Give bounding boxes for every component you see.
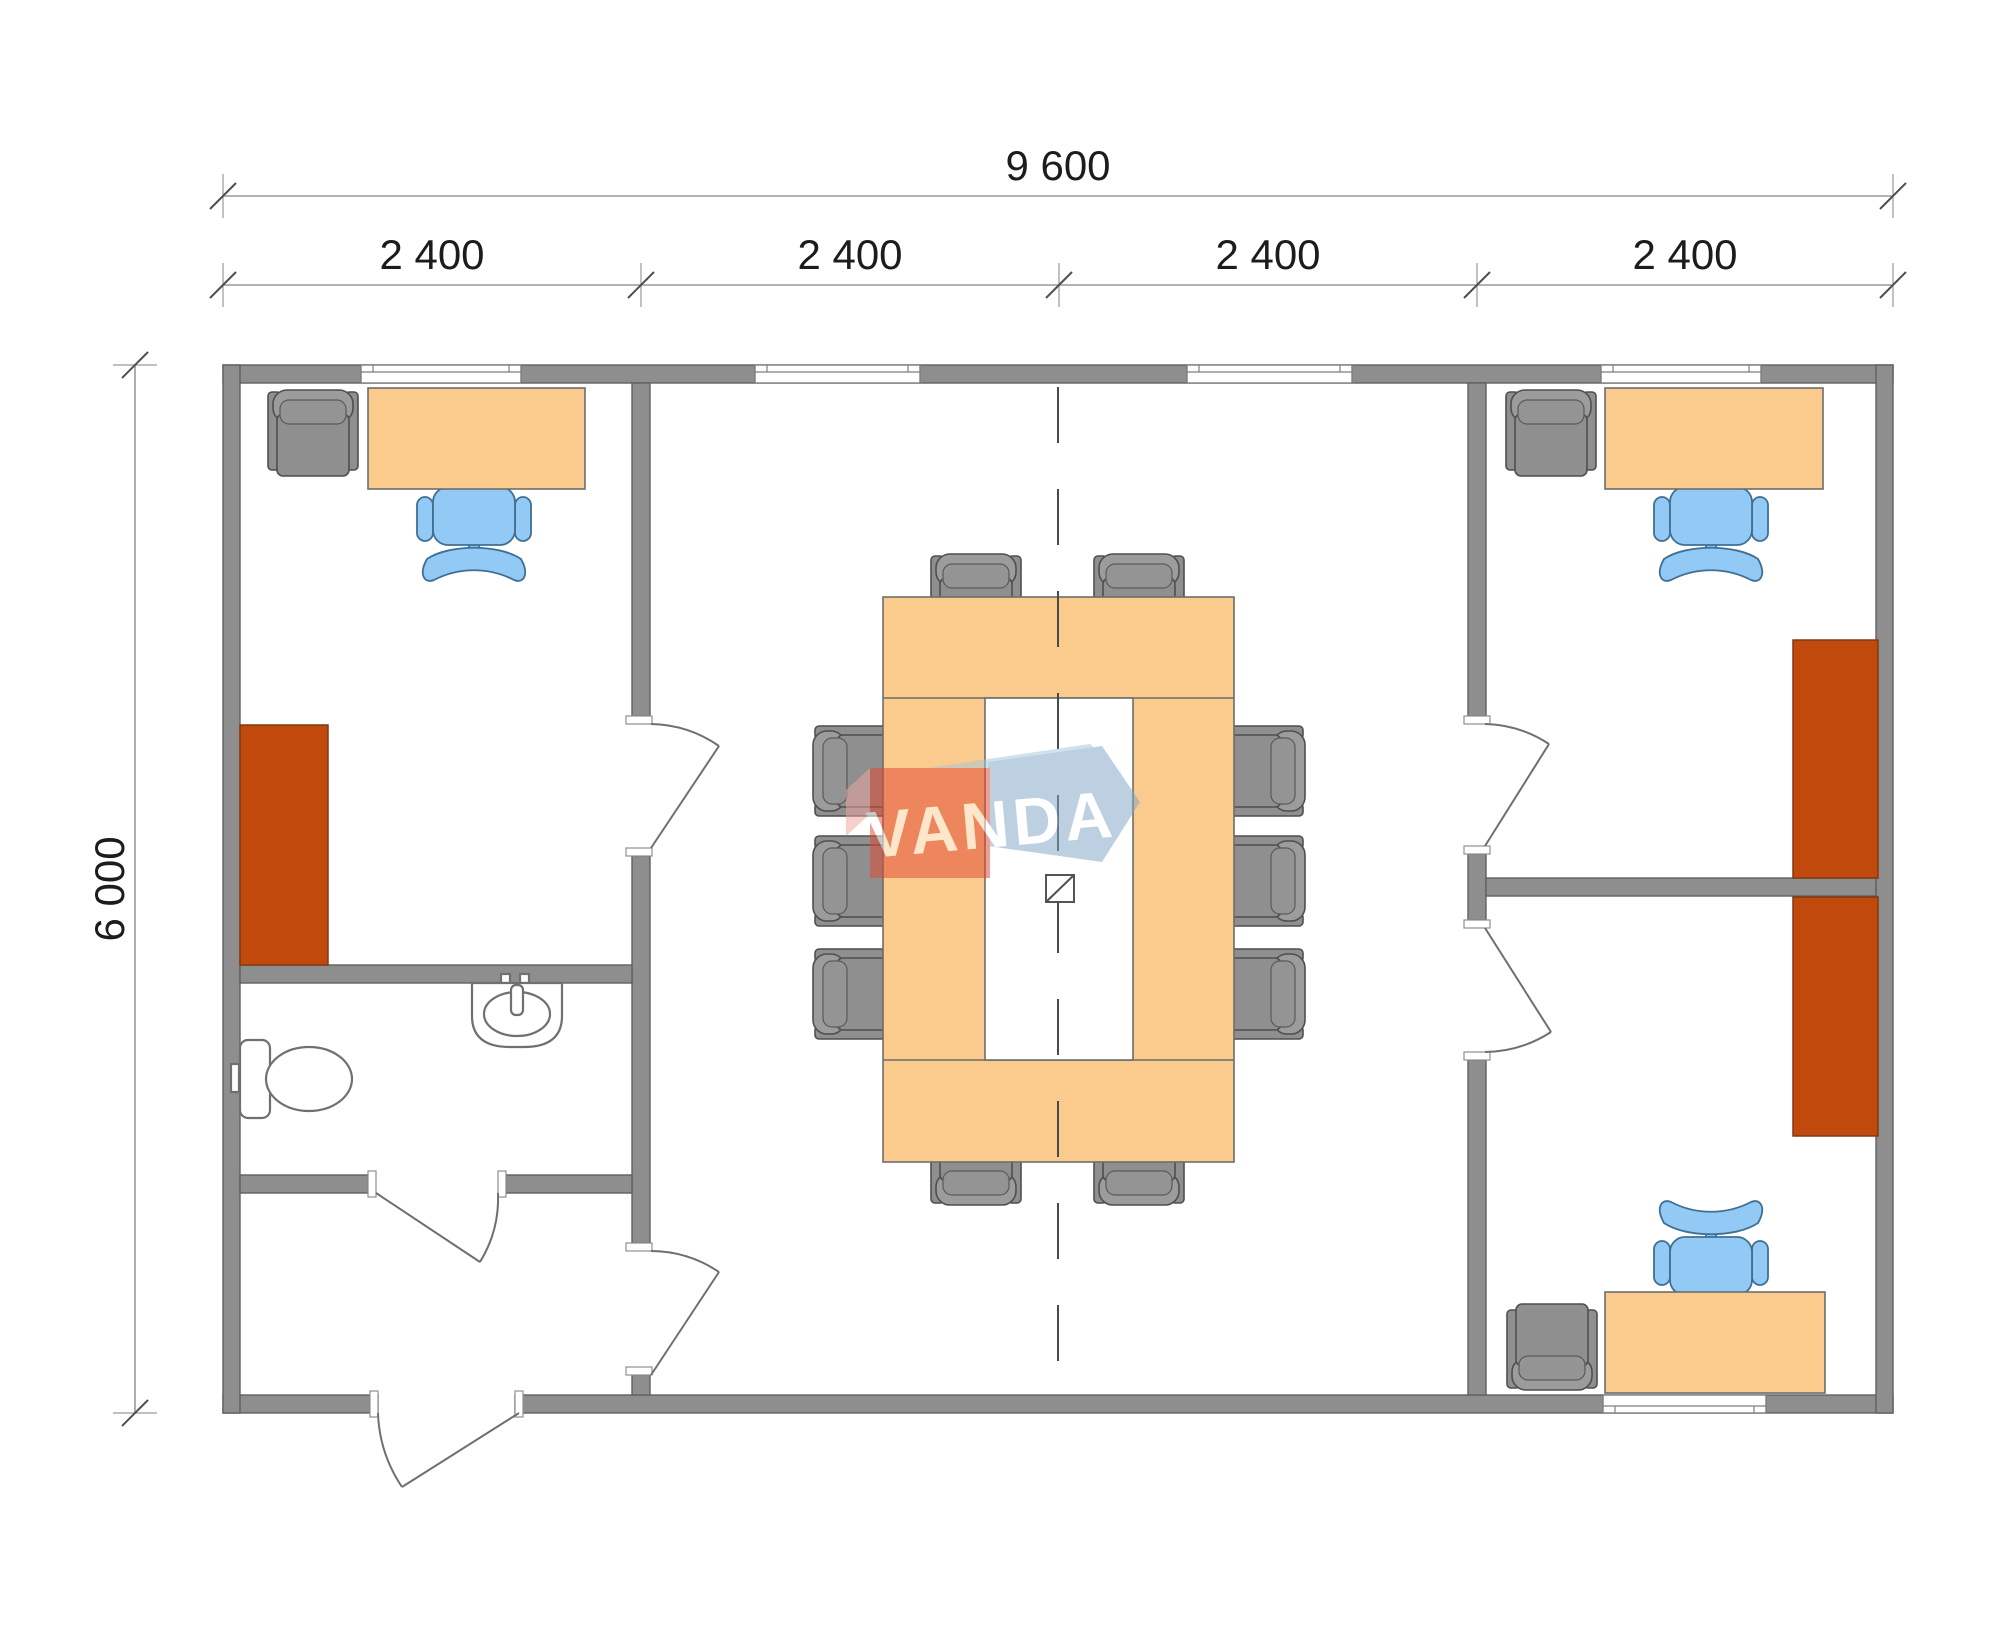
- dimension-label-overall-width: 9 600: [1005, 142, 1110, 189]
- visitor-chair: [268, 390, 358, 476]
- wall-right-rooms-divider: [1486, 878, 1876, 896]
- wall-left-module-middle: [632, 856, 650, 1243]
- dimension-label-module-2: 2 400: [797, 231, 902, 278]
- dimension-label-overall-height: 6 000: [86, 836, 133, 941]
- floor-plan-canvas: VANDA 9 600 2 400 2 400 2 400 2 400 6 00…: [0, 0, 2000, 1630]
- dimension-overall-width: 9 600: [210, 142, 1906, 218]
- wall-toilet-bottom-right: [506, 1175, 632, 1193]
- sink: [472, 974, 562, 1047]
- door-entrance: [378, 1413, 519, 1487]
- door-office-bottom-right: [1485, 928, 1551, 1052]
- faucet: [511, 985, 523, 1015]
- window-office-top-left: [361, 365, 521, 383]
- toilet-flush-valve: [231, 1064, 239, 1092]
- office-chair: [1654, 1201, 1768, 1295]
- wall-left-module-stub: [632, 1375, 650, 1395]
- dimension-modules: 2 400 2 400 2 400 2 400: [210, 231, 1906, 307]
- window-office-bottom-right: [1603, 1395, 1766, 1413]
- wall-right-module-upper: [1468, 383, 1486, 716]
- window-meeting-left: [755, 365, 920, 383]
- dimension-label-module-1: 2 400: [379, 231, 484, 278]
- dimension-label-module-4: 2 400: [1632, 231, 1737, 278]
- window-office-top-right: [1601, 365, 1761, 383]
- door-toilet: [376, 1193, 498, 1262]
- office-chair: [417, 487, 531, 581]
- office-top-right: [1506, 388, 1878, 878]
- visitor-chair: [1507, 1304, 1597, 1390]
- visitor-chair: [1506, 390, 1596, 476]
- door-meeting-room: [651, 1251, 719, 1375]
- wall-right: [1876, 365, 1893, 1413]
- module-axis: [1046, 387, 1074, 1404]
- wall-toilet-top: [240, 965, 632, 983]
- floor-plan-drawing: VANDA 9 600 2 400 2 400 2 400 2 400 6 00…: [0, 0, 2000, 1630]
- cabinet: [240, 725, 328, 965]
- office-top-left: [240, 388, 585, 965]
- office-bottom-right: [1507, 897, 1878, 1393]
- wall-toilet-bottom-left: [240, 1175, 368, 1193]
- door-office-left: [651, 724, 719, 848]
- toilet-room: [231, 974, 562, 1118]
- dimension-overall-height: 6 000: [86, 352, 157, 1426]
- wall-right-module-lower: [1468, 1060, 1486, 1395]
- wall-bottom-left-segment: [223, 1395, 378, 1413]
- desk: [1605, 1292, 1825, 1393]
- cabinet: [1793, 640, 1878, 878]
- wall-left: [223, 365, 240, 1413]
- office-chair: [1654, 487, 1768, 581]
- toilet-bowl: [266, 1047, 352, 1111]
- cabinet: [1793, 897, 1878, 1136]
- dimension-label-module-3: 2 400: [1215, 231, 1320, 278]
- window-meeting-right: [1187, 365, 1352, 383]
- wall-right-module-middle: [1468, 854, 1486, 920]
- desk: [1605, 388, 1823, 489]
- wall-left-module-upper: [632, 383, 650, 716]
- door-office-top-right: [1485, 724, 1549, 846]
- desk: [368, 388, 585, 489]
